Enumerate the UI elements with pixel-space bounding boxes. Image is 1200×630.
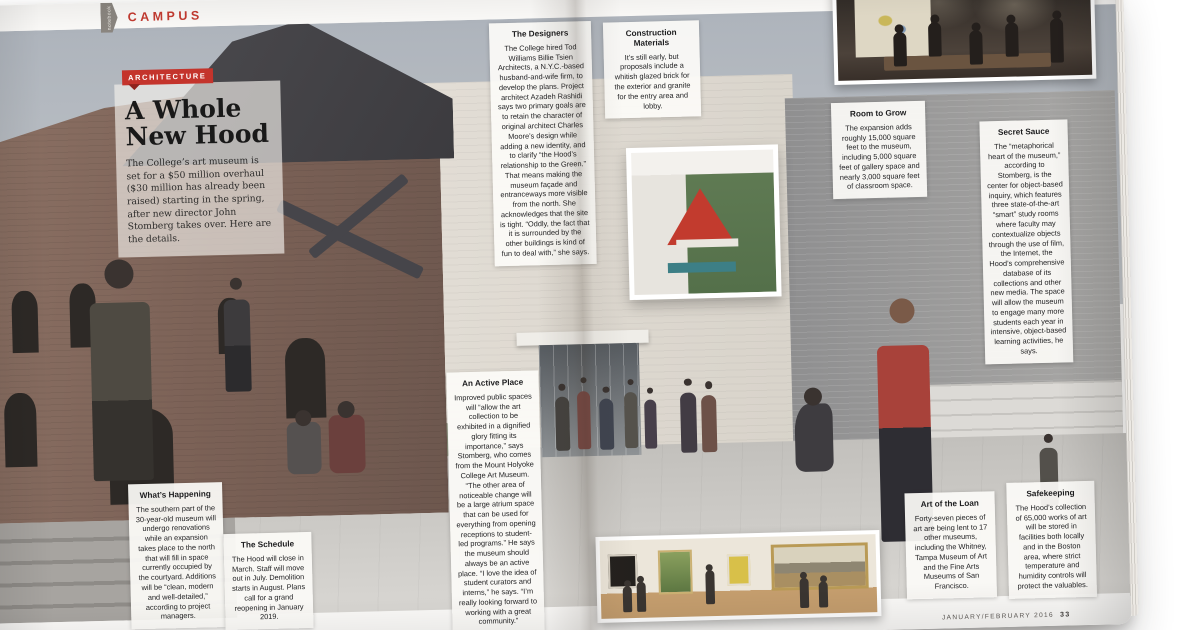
magazine-spread: notebook CAMPUS ARCHITECTURE A Whole New… bbox=[0, 0, 1132, 630]
arched-window bbox=[11, 291, 39, 354]
person-figure bbox=[636, 582, 646, 612]
classroom-rendering-inset bbox=[832, 0, 1096, 85]
person-figure bbox=[893, 33, 907, 67]
person-figure bbox=[701, 395, 717, 452]
section-label: CAMPUS bbox=[127, 8, 202, 24]
smart-classroom-image bbox=[836, 0, 1092, 81]
person-figure bbox=[705, 570, 715, 604]
triangle-artwork bbox=[666, 187, 735, 245]
person-figure bbox=[599, 399, 614, 450]
person-figure bbox=[969, 31, 983, 65]
framed-artwork bbox=[727, 554, 751, 585]
callout-body: The College hired Tod Williams Billie Ts… bbox=[495, 42, 590, 259]
gallery-interior-image bbox=[600, 534, 878, 619]
person-figure bbox=[819, 581, 829, 607]
callout-room-to-grow: Room to Grow The expansion adds roughly … bbox=[831, 101, 927, 199]
teal-artwork-band bbox=[668, 261, 736, 273]
callout-title: The Schedule bbox=[229, 539, 305, 551]
architectural-rendering: notebook CAMPUS ARCHITECTURE A Whole New… bbox=[0, 0, 1132, 630]
cyclist-figure bbox=[794, 403, 834, 472]
person-figure bbox=[577, 391, 591, 449]
callout-the-schedule: The Schedule The Hood will close in Marc… bbox=[223, 532, 313, 630]
callout-body: It’s still early, but proposals include … bbox=[610, 51, 695, 112]
article-headline: A Whole New Hood bbox=[125, 95, 272, 150]
callout-title: An Active Place bbox=[453, 377, 533, 389]
person-figure bbox=[644, 399, 657, 448]
callout-title: Room to Grow bbox=[837, 108, 919, 120]
arched-window bbox=[4, 393, 38, 468]
person-seated bbox=[328, 415, 365, 474]
headline-line-2: New Hood bbox=[125, 120, 272, 149]
section-header: notebook CAMPUS bbox=[100, 4, 203, 28]
category-tag: ARCHITECTURE bbox=[122, 68, 214, 85]
person-figure bbox=[90, 302, 154, 481]
magazine-photo-stage: notebook CAMPUS ARCHITECTURE A Whole New… bbox=[0, 0, 1200, 630]
callout-body: The “metaphorical heart of the museum,” … bbox=[986, 140, 1067, 357]
callout-title: Art of the Loan bbox=[911, 498, 989, 510]
callout-body: The Hood will close in March. Staff will… bbox=[230, 553, 308, 623]
person-figure bbox=[799, 578, 809, 608]
person-figure bbox=[928, 23, 942, 57]
person-seated bbox=[287, 422, 322, 475]
person-figure bbox=[680, 392, 697, 452]
gallery-rendering-inset bbox=[595, 530, 881, 623]
person-figure bbox=[224, 299, 252, 392]
person-figure bbox=[1005, 23, 1019, 57]
callout-safekeeping: Safekeeping The Hood’s collection of 65,… bbox=[1006, 481, 1097, 599]
callout-secret-sauce: Secret Sauce The “metaphorical heart of … bbox=[979, 119, 1073, 364]
headline-panel: A Whole New Hood The College’s art museu… bbox=[114, 81, 284, 258]
callout-art-of-the-loan: Art of the Loan Forty-seven pieces of ar… bbox=[904, 491, 997, 599]
callout-title: Safekeeping bbox=[1012, 488, 1088, 500]
callout-whats-happening: What’s Happening The southern part of th… bbox=[128, 482, 226, 629]
notebook-tab: notebook bbox=[100, 3, 118, 33]
callout-an-active-place: An Active Place Improved public spaces w… bbox=[446, 370, 544, 630]
callout-title: Construction Materials bbox=[609, 27, 693, 49]
callout-construction-materials: Construction Materials It’s still early,… bbox=[603, 20, 701, 119]
callout-body: Forty-seven pieces of art are being lent… bbox=[911, 512, 991, 592]
callout-body: The Hood’s collection of 65,000 works of… bbox=[1013, 502, 1091, 592]
artwork-stripe bbox=[676, 238, 739, 248]
person-figure bbox=[624, 392, 638, 448]
article-intro: The College’s art museum is set for a $5… bbox=[126, 155, 274, 247]
callout-title: The Designers bbox=[495, 28, 585, 40]
callout-title: What’s Happening bbox=[134, 489, 216, 501]
callout-body: Improved public spaces will “allow the a… bbox=[453, 391, 539, 627]
person-figure bbox=[1050, 19, 1064, 63]
person-figure bbox=[555, 397, 570, 451]
callout-body: The southern part of the 30-year-old mus… bbox=[135, 503, 220, 622]
gallery-interior bbox=[631, 150, 776, 295]
person-figure bbox=[623, 586, 633, 612]
callout-the-designers: The Designers The College hired Tod Will… bbox=[489, 21, 597, 266]
framed-artwork bbox=[658, 550, 693, 595]
callout-title: Secret Sauce bbox=[986, 126, 1062, 138]
page-number-right: 33 bbox=[1060, 611, 1071, 618]
arched-window bbox=[284, 338, 326, 419]
glass-gallery-cube bbox=[626, 144, 782, 300]
callout-body: The expansion adds roughly 15,000 square… bbox=[837, 122, 921, 192]
notebook-tab-label: notebook bbox=[106, 5, 113, 30]
